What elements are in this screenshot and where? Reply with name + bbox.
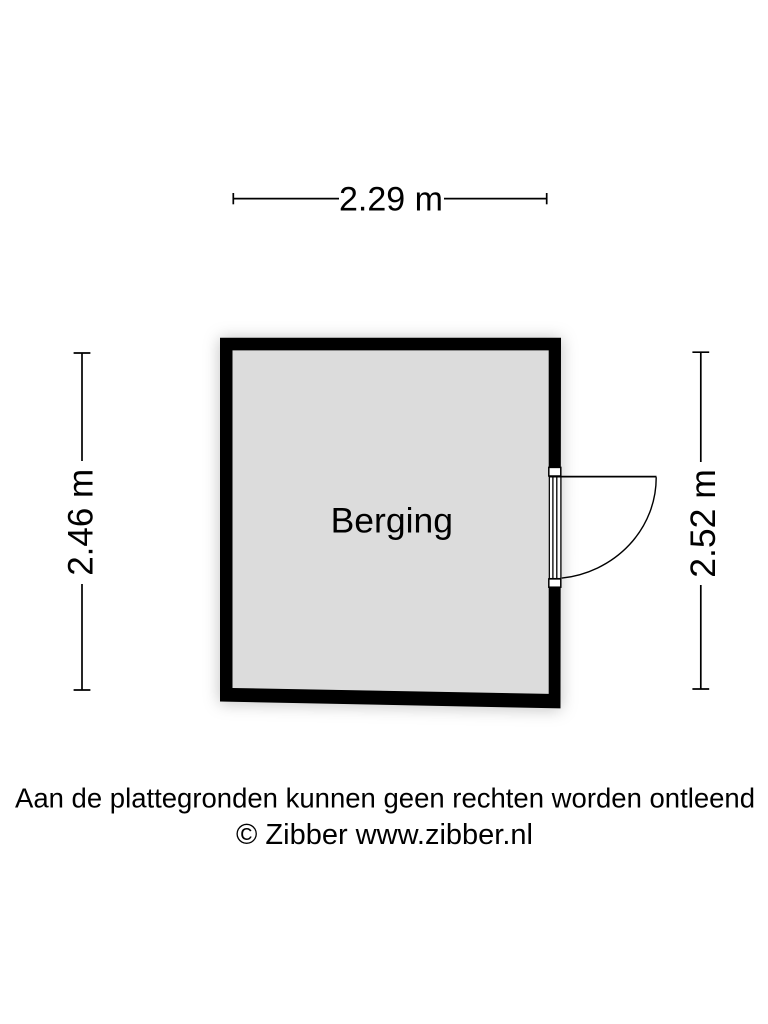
svg-text:Berging: Berging	[331, 501, 453, 541]
svg-text:2.52 m: 2.52 m	[683, 469, 723, 578]
svg-text:2.29 m: 2.29 m	[339, 181, 443, 219]
svg-text:2.46 m: 2.46 m	[62, 469, 101, 576]
svg-text:Aan de plattegronden kunnen ge: Aan de plattegronden kunnen geen rechten…	[15, 783, 755, 814]
svg-text:© Zibber www.zibber.nl: © Zibber www.zibber.nl	[236, 819, 533, 851]
